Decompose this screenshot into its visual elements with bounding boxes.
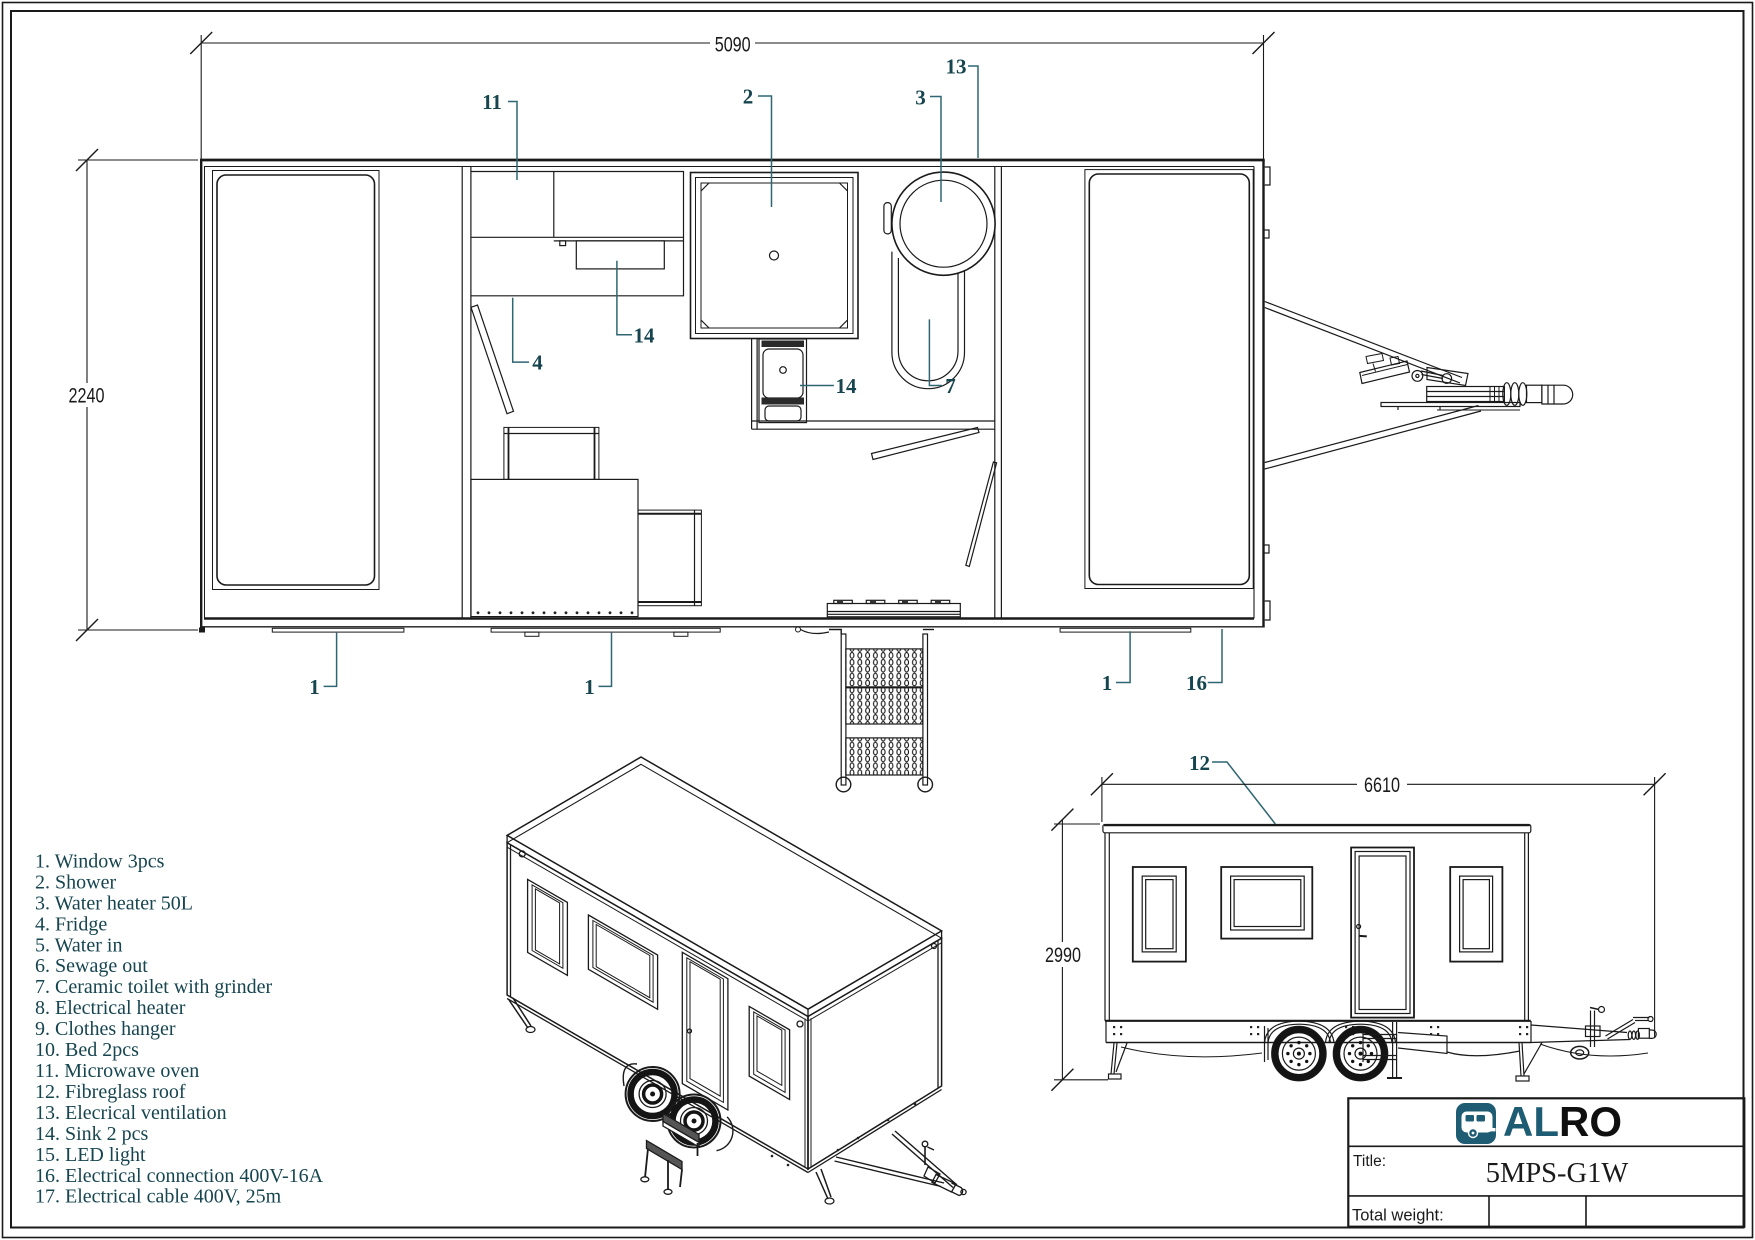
svg-text:Title:: Title: xyxy=(1353,1153,1386,1170)
svg-text:9. Clothes hanger: 9. Clothes hanger xyxy=(35,1018,176,1040)
svg-text:8. Electrical heater: 8. Electrical heater xyxy=(35,997,186,1019)
svg-text:1: 1 xyxy=(309,675,320,699)
svg-text:17. Electrical cable 400V, 25m: 17. Electrical cable 400V, 25m xyxy=(35,1186,282,1208)
svg-text:16: 16 xyxy=(1186,671,1207,695)
svg-text:12: 12 xyxy=(1189,751,1210,775)
svg-text:13. Elecrical ventilation: 13. Elecrical ventilation xyxy=(35,1102,227,1124)
svg-text:Total weight:: Total weight: xyxy=(1352,1207,1444,1225)
svg-text:7: 7 xyxy=(945,374,956,398)
svg-text:5090: 5090 xyxy=(715,33,751,57)
svg-text:1: 1 xyxy=(584,675,595,699)
svg-text:5MPS-G1W: 5MPS-G1W xyxy=(1486,1158,1629,1189)
svg-text:7. Ceramic toilet with grinder: 7. Ceramic toilet with grinder xyxy=(35,976,272,998)
svg-text:14: 14 xyxy=(634,324,656,348)
svg-text:1. Window 3pcs: 1. Window 3pcs xyxy=(35,851,165,873)
svg-text:ALRO: ALRO xyxy=(1503,1098,1622,1145)
svg-text:16. Electrical connection 400V: 16. Electrical connection 400V-16A xyxy=(35,1165,324,1187)
svg-text:5. Water in: 5. Water in xyxy=(35,934,122,956)
svg-text:2: 2 xyxy=(743,85,754,109)
svg-text:12. Fibreglass roof: 12. Fibreglass roof xyxy=(35,1081,186,1103)
svg-text:6. Sewage out: 6. Sewage out xyxy=(35,955,148,977)
svg-text:4. Fridge: 4. Fridge xyxy=(35,913,107,935)
svg-text:14. Sink 2 pcs: 14. Sink 2 pcs xyxy=(35,1123,149,1145)
svg-text:3. Water heater 50L: 3. Water heater 50L xyxy=(35,892,193,914)
svg-text:1: 1 xyxy=(1102,671,1113,695)
svg-text:2990: 2990 xyxy=(1045,943,1081,967)
svg-text:11: 11 xyxy=(482,90,502,114)
svg-text:15. LED light: 15. LED light xyxy=(35,1144,146,1166)
svg-text:13: 13 xyxy=(946,55,967,79)
svg-text:2. Shower: 2. Shower xyxy=(35,872,116,894)
svg-text:14: 14 xyxy=(836,374,858,398)
svg-text:3: 3 xyxy=(915,86,926,110)
svg-text:4: 4 xyxy=(532,351,543,375)
svg-text:2240: 2240 xyxy=(69,384,105,408)
svg-text:10. Bed 2pcs: 10. Bed 2pcs xyxy=(35,1039,139,1061)
svg-text:11. Microwave oven: 11. Microwave oven xyxy=(35,1060,199,1082)
svg-text:6610: 6610 xyxy=(1364,773,1400,797)
